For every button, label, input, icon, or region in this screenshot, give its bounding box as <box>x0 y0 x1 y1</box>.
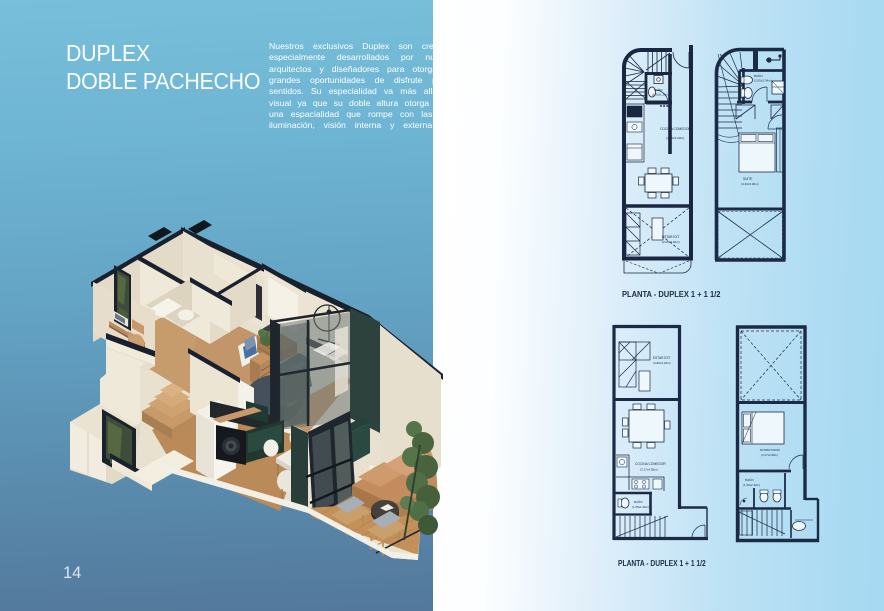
svg-text:BAÑO: BAÑO <box>654 87 663 92</box>
svg-text:(1.65x1.50m): (1.65x1.50m) <box>632 505 649 509</box>
svg-text:(1.60x1.20m): (1.60x1.20m) <box>652 93 669 97</box>
svg-text:(1.90x2.12m): (1.90x2.12m) <box>743 483 760 487</box>
svg-text:(2.05x3.00m): (2.05x3.00m) <box>662 240 680 244</box>
svg-text:(3.17x4.05m): (3.17x4.05m) <box>640 468 658 472</box>
svg-text:DORMITORIO: DORMITORIO <box>760 448 781 452</box>
svg-text:(4.65x3.20m): (4.65x3.20m) <box>666 136 684 140</box>
svg-text:BAÑO: BAÑO <box>754 73 763 78</box>
svg-text:ESTAR EXT: ESTAR EXT <box>662 235 680 239</box>
svg-text:COCINA COMEDOR: COCINA COMEDOR <box>660 127 691 131</box>
svg-text:SUITE: SUITE <box>743 177 752 181</box>
svg-text:ESTAR EXT: ESTAR EXT <box>653 356 671 360</box>
svg-text:(3.17x2.99m): (3.17x2.99m) <box>761 453 778 457</box>
svg-text:COCINA COMEDOR: COCINA COMEDOR <box>635 462 666 466</box>
svg-text:(2.05x2.34m): (2.05x2.34m) <box>754 79 772 83</box>
svg-text:(3.80x3.18m): (3.80x3.18m) <box>653 361 671 365</box>
svg-text:(4.40x3.00m): (4.40x3.00m) <box>741 182 759 186</box>
svg-text:BAÑO: BAÑO <box>745 477 754 482</box>
svg-text:BAÑO: BAÑO <box>634 499 643 504</box>
